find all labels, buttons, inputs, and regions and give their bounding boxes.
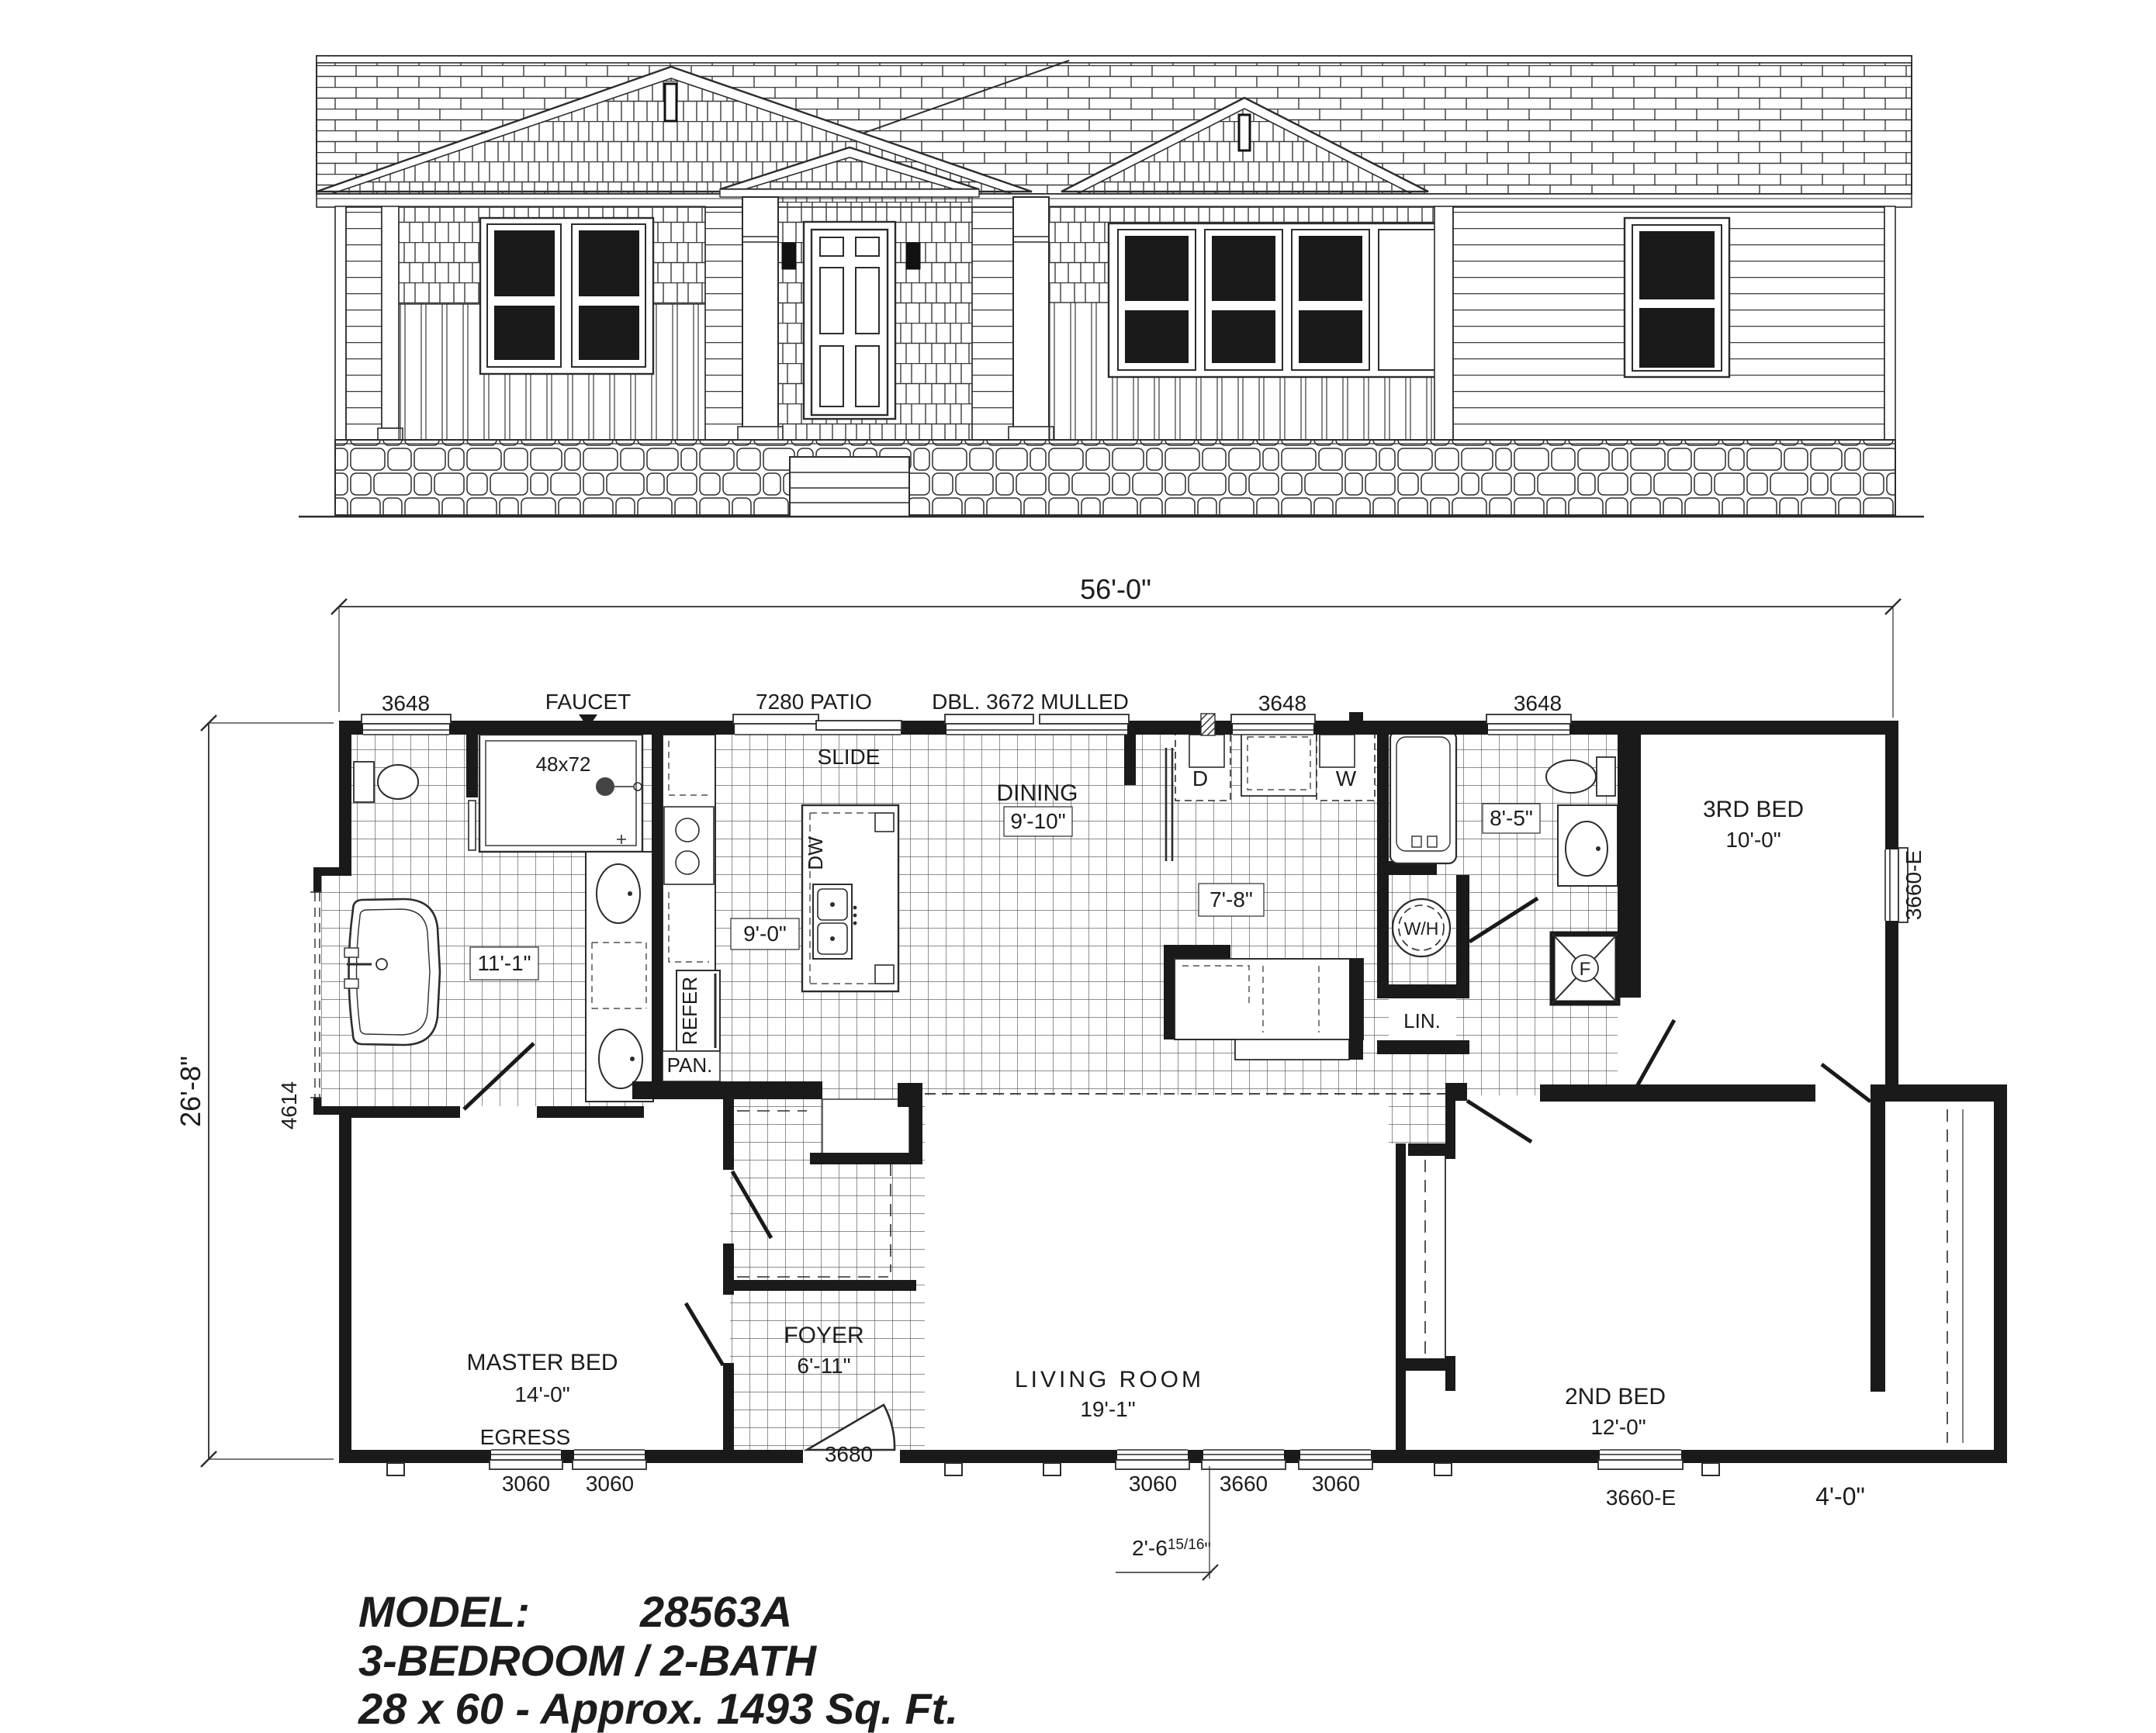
svg-text:DINING: DINING xyxy=(997,780,1078,806)
svg-text:3060: 3060 xyxy=(1312,1472,1360,1496)
svg-text:EGRESS: EGRESS xyxy=(480,1425,571,1449)
svg-text:9'-10": 9'-10" xyxy=(1010,809,1065,833)
svg-text:3060: 3060 xyxy=(502,1472,550,1496)
svg-text:26'-8": 26'-8" xyxy=(175,1056,206,1127)
svg-text:DW: DW xyxy=(804,836,827,870)
svg-text:12'-0": 12'-0" xyxy=(1590,1415,1646,1439)
svg-text:3RD BED: 3RD BED xyxy=(1703,797,1804,822)
svg-text:2ND BED: 2ND BED xyxy=(1565,1384,1666,1410)
svg-text:W: W xyxy=(1336,766,1357,790)
svg-text:48x72: 48x72 xyxy=(536,752,591,776)
svg-text:FAUCET: FAUCET xyxy=(545,690,631,714)
svg-text:3-BEDROOM / 2-BATH: 3-BEDROOM / 2-BATH xyxy=(358,1636,818,1685)
svg-text:F: F xyxy=(1580,959,1591,980)
svg-text:14'-0": 14'-0" xyxy=(514,1382,569,1406)
svg-text:3060: 3060 xyxy=(1129,1472,1177,1496)
svg-text:FOYER: FOYER xyxy=(784,1323,863,1348)
svg-text:3060: 3060 xyxy=(586,1472,634,1496)
svg-text:8'-5": 8'-5" xyxy=(1490,806,1533,830)
svg-text:SLIDE: SLIDE xyxy=(818,745,881,769)
svg-text:19'-1": 19'-1" xyxy=(1080,1397,1135,1421)
svg-text:3648: 3648 xyxy=(1258,691,1306,715)
svg-text:7280 PATIO: 7280 PATIO xyxy=(756,690,872,714)
svg-text:DBL. 3672 MULLED: DBL. 3672 MULLED xyxy=(932,690,1129,714)
svg-text:4614: 4614 xyxy=(277,1081,301,1129)
svg-text:4'-0": 4'-0" xyxy=(1815,1482,1865,1510)
svg-text:W/H: W/H xyxy=(1404,918,1439,939)
svg-text:3660-E: 3660-E xyxy=(1902,850,1926,920)
svg-text:3648: 3648 xyxy=(382,691,430,715)
svg-text:MASTER BED: MASTER BED xyxy=(466,1350,618,1375)
svg-text:3648: 3648 xyxy=(1514,691,1562,715)
svg-text:6'-11": 6'-11" xyxy=(797,1354,850,1378)
svg-text:PAN.: PAN. xyxy=(667,1053,713,1077)
svg-text:9'-0": 9'-0" xyxy=(743,922,787,946)
svg-text:LIN.: LIN. xyxy=(1403,1009,1441,1033)
svg-text:REFER: REFER xyxy=(678,977,701,1045)
svg-text:11'-1": 11'-1" xyxy=(477,951,531,975)
svg-text:56'-0": 56'-0" xyxy=(1080,573,1151,605)
svg-text:28563A: 28563A xyxy=(639,1587,792,1636)
svg-text:LIVING ROOM: LIVING ROOM xyxy=(1015,1367,1204,1392)
svg-text:28 x 60 - Approx. 1493 Sq. Ft.: 28 x 60 - Approx. 1493 Sq. Ft. xyxy=(358,1684,958,1733)
svg-text:10'-0": 10'-0" xyxy=(1725,828,1781,852)
svg-text:D: D xyxy=(1192,766,1208,790)
svg-text:3680: 3680 xyxy=(825,1442,873,1466)
svg-text:3660-E: 3660-E xyxy=(1606,1486,1676,1510)
svg-text:7'-8": 7'-8" xyxy=(1210,887,1253,911)
svg-text:3660: 3660 xyxy=(1220,1472,1268,1496)
svg-text:MODEL:: MODEL: xyxy=(358,1587,530,1636)
